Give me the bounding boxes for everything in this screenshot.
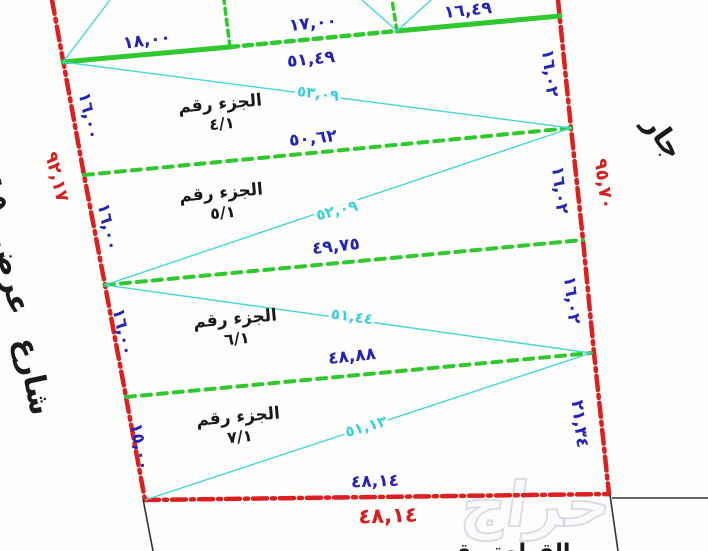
dim-right-s3: ١٦,٠٢ xyxy=(560,275,582,324)
dim-top-seg3: ١٦,٤٩ xyxy=(443,0,492,22)
dim-divider-1: ٥٠,٦٢ xyxy=(288,128,337,150)
diagonal-top-left xyxy=(63,0,110,62)
boundary-bottom-red xyxy=(145,494,609,500)
neighbor-line-bottom-right-v xyxy=(610,495,618,551)
dim-divider-2: ٤٩,٧٥ xyxy=(311,236,360,258)
part-4-label: الجزء رقم ٤/١ xyxy=(178,91,265,136)
part-6-label: الجزء رقم ٦/١ xyxy=(193,306,280,351)
bottom-plot-text: القطعة رقم xyxy=(440,542,571,551)
neighbor-line-bottom-left xyxy=(143,499,153,551)
dim-divider-3: ٤٨,٨٨ xyxy=(327,346,376,368)
plot-survey-diagram: حراج xyxy=(0,0,708,551)
dim-bottom-outer: ٤٨,١٤ xyxy=(358,504,418,527)
part-5-label: الجزء رقم ٥/١ xyxy=(179,180,266,225)
dim-top-seg2: ١٧,٠٠ xyxy=(288,13,337,35)
tick-vertical-dashed-1 xyxy=(224,0,230,47)
part-7-label: الجزء رقم ٧/١ xyxy=(196,404,283,449)
dim-right-s4: ٢١,٣٤ xyxy=(568,399,591,449)
dim-right-s1: ١٦,٠٢ xyxy=(538,48,560,97)
dim-right-s2: ١٦,٠٢ xyxy=(548,165,570,214)
survey-lines-layer xyxy=(0,0,708,551)
dim-bottom-inner: ٤٨,١٤ xyxy=(351,473,400,492)
dim-top-total: ٥١,٤٩ xyxy=(286,49,335,71)
